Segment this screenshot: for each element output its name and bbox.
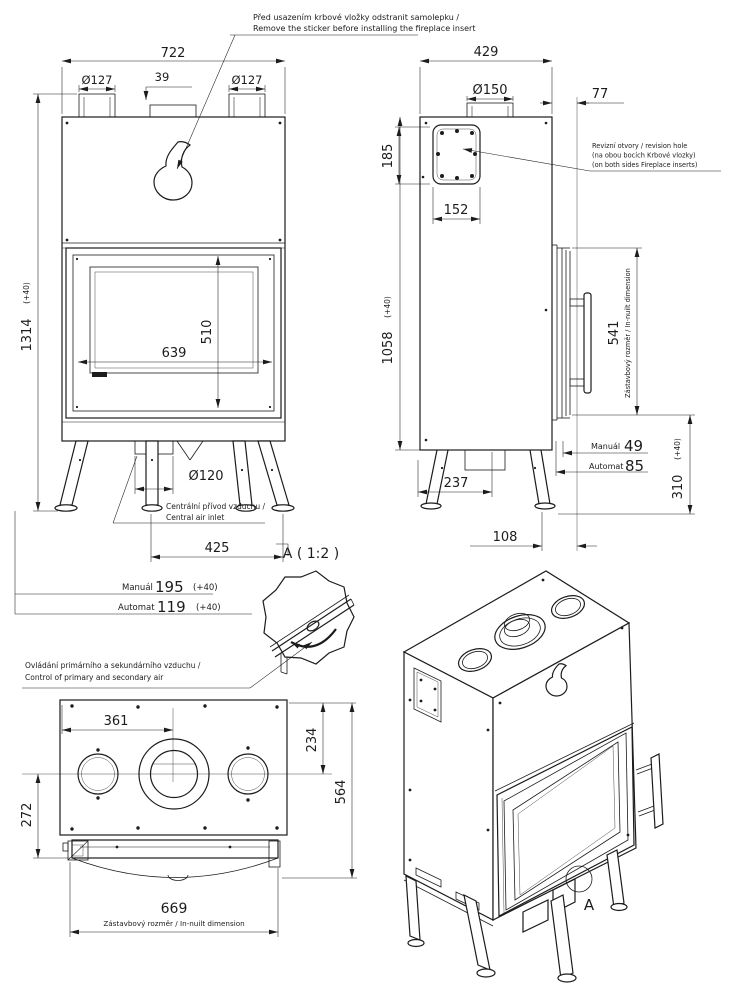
air-inlet-note-c-z: Centrální přívod vzduchu /: [166, 502, 266, 511]
dim-text-669: 669: [161, 901, 188, 917]
dim-revision-height: 185: [381, 127, 430, 184]
side-manual-label: Manuál: [591, 442, 620, 451]
side-control-heights: Manuál 49 Automat 85: [556, 437, 648, 476]
dim-glass-width: 639: [78, 346, 272, 362]
side-view: 429 Ø150 77 185 152 Revizní otvory /: [381, 45, 721, 551]
dim-text-1314-tol: (+40): [22, 282, 31, 304]
detail-a-boundary: [263, 571, 354, 664]
dim-side-depth-total: 429: [420, 45, 552, 114]
front-automat-tol: (+40): [196, 603, 221, 613]
dim-foot-offset: 108: [470, 512, 597, 551]
front-view: 722 Ø127 Ø127 39 1314 (+40): [15, 46, 294, 616]
dim-text-361: 361: [104, 714, 129, 729]
side-air-inlet: [465, 450, 505, 470]
flame-logo-icon: [154, 142, 192, 200]
dim-text-108: 108: [493, 530, 518, 545]
dim-text-429: 429: [474, 45, 499, 60]
dim-text-541: 541: [607, 321, 622, 346]
dim-collar-left: Ø127: [79, 73, 115, 92]
top-view: 361 234 564 272 669 Zástavbový rozměr / …: [20, 700, 357, 937]
air-inlet-note-en: Central air inlet: [166, 513, 224, 522]
front-manual-tol: (+40): [193, 583, 218, 593]
dim-text-234: 234: [305, 728, 320, 753]
sticker-note-cz: Před usazením krbové vložky odstranit sa…: [253, 12, 459, 22]
dim-text-152: 152: [444, 203, 469, 218]
iso-view: A: [404, 571, 663, 982]
dim-text-237: 237: [444, 476, 469, 491]
side-view-body: [420, 103, 591, 470]
top-view-plate: [22, 700, 332, 835]
sticker-note-en: Remove the sticker before installing the…: [253, 24, 475, 33]
iso-body: [404, 571, 663, 932]
dim-text-1314: 1314: [20, 318, 35, 351]
dim-text-o150: Ø150: [472, 83, 507, 98]
side-view-legs: [421, 450, 555, 509]
dim-revision-width: 152: [433, 187, 480, 224]
side-automat-value: 85: [625, 457, 644, 475]
dim-text-272: 272: [20, 803, 35, 828]
front-automat-label: Automat: [118, 603, 155, 613]
dim-inbuilt-width: 669 Zástavbový rozměr / In-nuilt dimensi…: [70, 862, 278, 937]
dim-glass-height: 510: [200, 256, 218, 408]
drawing-canvas: Před usazením krbové vložky odstranit sa…: [0, 0, 745, 1000]
dim-flue-collar: Ø150: [467, 83, 513, 101]
front-view-body: [62, 94, 285, 441]
detail-a-label: A ( 1:2 ): [283, 546, 339, 562]
revision-note-2: (na obou bocích Krbové vlozky): [592, 152, 696, 160]
front-view-air-inlet: [135, 441, 203, 460]
dim-collar-spacing: 361: [62, 705, 173, 734]
dim-center-offset: 234: [289, 703, 356, 774]
detail-view-a: A ( 1:2 ) Ovládání primárního a sekundár…: [22, 544, 354, 688]
dim-text-310-tol: (+40): [673, 438, 682, 460]
inbuilt-height-label: Zástavbový rozměr / In-nuilt dimension: [624, 268, 632, 398]
dim-text-o127-right: Ø127: [231, 73, 262, 87]
control-note-cz: Ovládání primárního a sekundárního vzduc…: [25, 661, 201, 670]
iso-detail-marker-label: A: [584, 896, 595, 914]
control-note: Ovládání primárního a sekundárního vzduc…: [22, 642, 312, 688]
dim-text-o127-left: Ø127: [81, 73, 112, 87]
dim-text-1058: 1058: [381, 331, 396, 364]
door-latch: [92, 372, 107, 377]
dim-inbuilt-height: 541 Zástavbový rozměr / In-nuilt dimensi…: [572, 248, 642, 415]
top-view-door-front: [63, 840, 280, 881]
dim-text-564: 564: [334, 780, 349, 805]
inbuilt-width-label: Zástavbový rozměr / In-nuilt dimension: [103, 919, 244, 928]
dim-text-1058-tol: (+40): [383, 296, 392, 318]
dim-collar-offset: 39: [146, 70, 192, 100]
dim-text-77: 77: [592, 87, 609, 102]
front-view-legs: [55, 441, 294, 511]
dim-text-639: 639: [162, 346, 187, 361]
revision-note-1: Revizní otvory / revision hole: [592, 142, 687, 150]
sticker-note: Před usazením krbové vložky odstranit sa…: [177, 12, 475, 169]
fireplace-insert-drawing: Před usazením krbové vložky odstranit sa…: [0, 0, 745, 1000]
dim-text-510: 510: [200, 320, 215, 345]
dim-text-185: 185: [381, 144, 396, 169]
front-automat-value: 119: [157, 598, 186, 616]
front-control-heights: Manuál 195 (+40) Automat 119 (+40): [15, 511, 252, 616]
dim-text-310: 310: [671, 475, 686, 500]
dim-collar-right: Ø127: [229, 73, 265, 92]
side-door-edge: [552, 245, 570, 420]
front-manual-value: 195: [155, 578, 184, 596]
front-view-door: [66, 248, 281, 418]
iso-door-handle: [636, 754, 663, 828]
dim-text-o120: Ø120: [188, 469, 223, 484]
dim-front-offset: 272: [20, 774, 70, 858]
front-manual-label: Manuál: [122, 583, 153, 593]
dim-text-39: 39: [155, 70, 170, 84]
control-note-en: Control of primary and secondary air: [25, 673, 164, 682]
dim-text-722: 722: [161, 46, 186, 61]
dim-front-height-total: 1314 (+40): [20, 94, 77, 511]
side-door-handle: [570, 293, 591, 393]
dim-text-425: 425: [205, 541, 230, 556]
revision-note: Revizní otvory / revision hole (na obou …: [463, 142, 721, 171]
side-manual-value: 49: [624, 437, 643, 455]
revision-note-3: (on both sides Fireplace inserts): [592, 161, 697, 169]
side-automat-label: Automat: [589, 462, 623, 471]
revision-hole: [422, 125, 480, 184]
